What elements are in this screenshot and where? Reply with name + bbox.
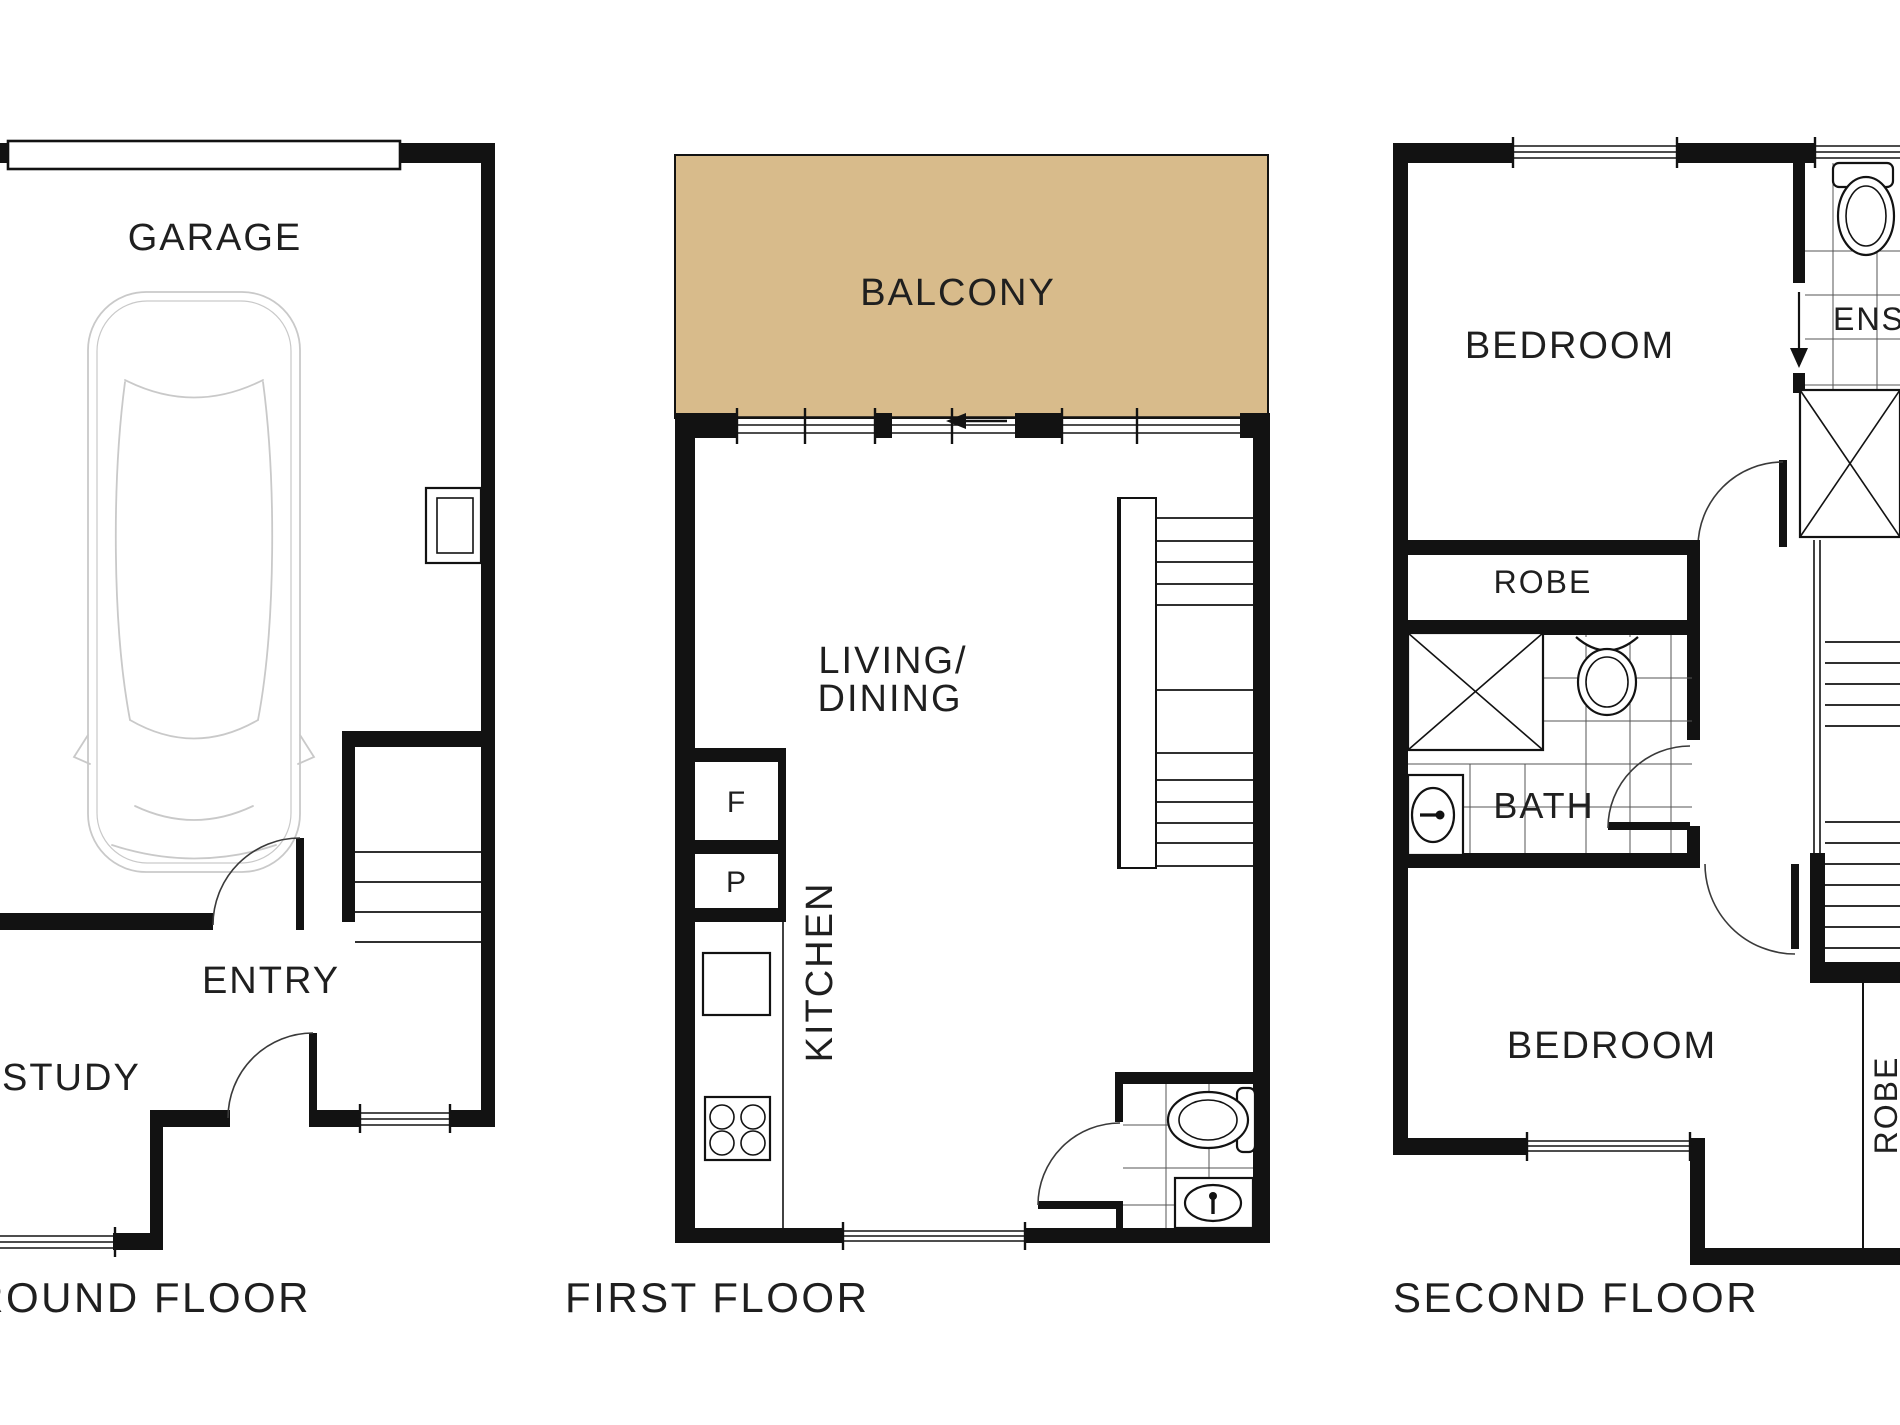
first-stairs xyxy=(1118,498,1253,868)
second-floor-plan: ENSUITE BEDROOM ROBE xyxy=(1393,137,1900,1321)
bath-door xyxy=(1608,746,1690,830)
bath-toilet-icon xyxy=(1576,637,1638,715)
room-label-living: LIVING/ xyxy=(818,640,967,682)
label-pantry: P xyxy=(726,866,748,899)
second-bottom-wall-left xyxy=(1393,1138,1527,1155)
master-bedroom-door xyxy=(1698,460,1787,547)
rear-bedroom-window xyxy=(1527,1132,1690,1161)
room-label-kitchen: KITCHEN xyxy=(799,882,841,1063)
room-label-balcony: BALCONY xyxy=(860,272,1056,314)
ensuite-area: ENSUITE xyxy=(1790,143,1900,537)
bath-basin-icon xyxy=(1408,775,1463,855)
built-in-robe: ROBE xyxy=(1863,983,1900,1248)
entry-divider-wall xyxy=(0,913,213,930)
robe-top-wall xyxy=(1408,540,1700,555)
fridge-pantry-divider xyxy=(695,840,786,854)
wc-door xyxy=(1038,1123,1123,1241)
first-floor-plan: BALCONY xyxy=(565,155,1270,1321)
study-window-bottom-right xyxy=(360,1104,450,1133)
floor-plan-page: GARAGE ENTRY STUDY GROUND FLOOR BALCONY xyxy=(0,0,1900,1425)
first-bottom-wall-left xyxy=(675,1228,843,1243)
ground-stairs xyxy=(342,731,495,942)
study-door xyxy=(228,1033,317,1118)
fridge-top-wall xyxy=(695,748,786,762)
label-fridge: F xyxy=(727,786,747,819)
room-label-bedroom-front: BEDROOM xyxy=(1465,325,1675,367)
study-wall-right xyxy=(450,1110,495,1127)
floor-plan-drawing: GARAGE ENTRY STUDY GROUND FLOOR BALCONY xyxy=(0,0,1900,1425)
ground-floor-plan: GARAGE ENTRY STUDY GROUND FLOOR xyxy=(0,141,495,1321)
car-icon xyxy=(74,292,314,872)
ensuite-shower-icon xyxy=(1800,390,1900,537)
robe-corridor: ROBE xyxy=(1408,540,1700,635)
ensuite-toilet-icon xyxy=(1833,163,1894,255)
bedroom1-window xyxy=(1513,137,1677,168)
second-floor-title: SECOND FLOOR xyxy=(1393,1274,1759,1321)
room-label-bedroom-rear: BEDROOM xyxy=(1507,1025,1717,1067)
room-label-dining: DINING xyxy=(818,678,963,720)
second-step-wall xyxy=(1690,1138,1705,1265)
stair-bottom-wall xyxy=(1810,962,1900,983)
room-label-study: STUDY xyxy=(2,1057,141,1099)
ground-floor-title: GROUND FLOOR xyxy=(0,1274,311,1321)
room-label-robe-hall: ROBE xyxy=(1494,564,1593,600)
toilet-icon xyxy=(1168,1088,1255,1152)
cooktop-icon xyxy=(705,1097,770,1160)
ensuite-entry-arrow xyxy=(1790,292,1808,368)
room-label-ensuite: ENSUITE xyxy=(1833,301,1900,337)
ensuite-partition-wall xyxy=(1793,143,1805,283)
wc-top-wall xyxy=(1115,1072,1270,1084)
sink-icon xyxy=(703,953,770,1015)
study-step-wall xyxy=(150,1110,163,1250)
room-label-entry: ENTRY xyxy=(202,960,340,1002)
kitchen-area: F P KITCHEN xyxy=(695,748,841,1228)
ground-right-wall xyxy=(481,143,495,1127)
first-bottom-wall-right xyxy=(1025,1228,1270,1243)
second-stairs xyxy=(1810,540,1900,983)
room-label-robe-builtin: ROBE xyxy=(1868,1056,1900,1155)
study-bottom-wall xyxy=(113,1233,163,1250)
cupboard-side-wall xyxy=(778,748,786,922)
room-label-garage: GARAGE xyxy=(128,217,303,259)
rear-bedroom-door xyxy=(1705,864,1799,954)
meter-box xyxy=(426,488,481,563)
second-top-wall-left xyxy=(1393,143,1513,163)
garage-door xyxy=(8,141,400,169)
pantry-bottom-wall xyxy=(695,908,786,922)
second-left-wall xyxy=(1393,143,1408,1155)
entry-door xyxy=(213,838,304,930)
bath-right-wall xyxy=(1687,540,1700,740)
first-left-wall xyxy=(675,413,695,1243)
powder-room xyxy=(1038,1072,1270,1241)
bath-shower-icon xyxy=(1408,633,1543,750)
second-bottom-wall-right xyxy=(1690,1248,1900,1265)
wc-left-wall xyxy=(1115,1072,1123,1122)
first-bottom-window xyxy=(843,1222,1025,1250)
room-label-bath: BATH xyxy=(1493,785,1594,826)
vanity-basin-icon xyxy=(1175,1178,1253,1228)
study-window-bottom-left xyxy=(0,1227,115,1257)
first-floor-title: FIRST FLOOR xyxy=(565,1274,869,1321)
